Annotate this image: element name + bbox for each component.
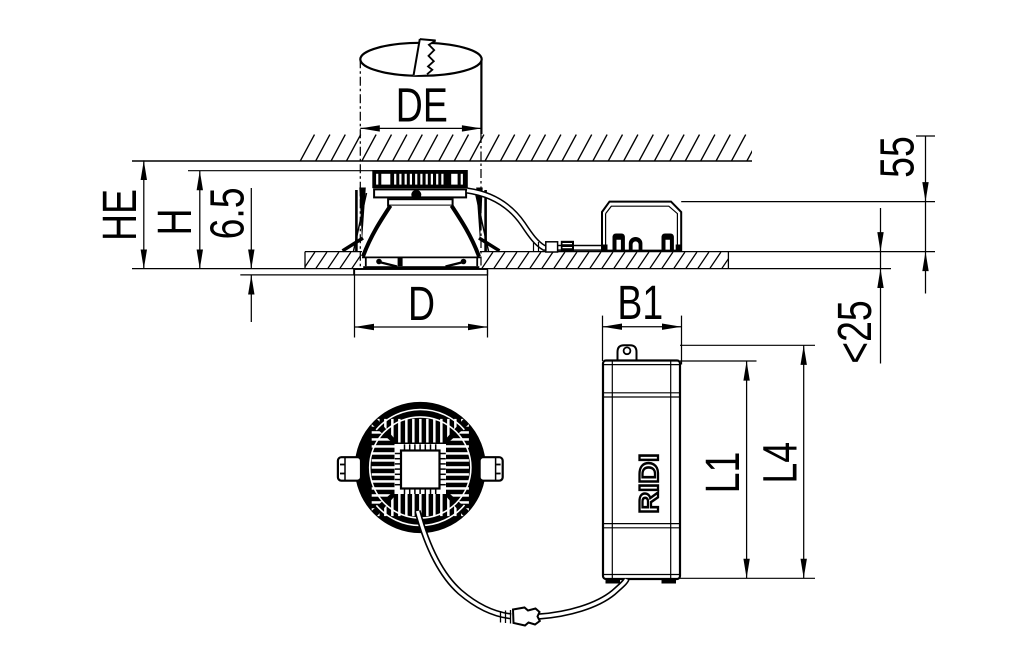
svg-text:L1: L1 — [697, 452, 751, 494]
svg-text:DE: DE — [396, 79, 448, 133]
svg-text:RIDI: RIDI — [634, 454, 664, 514]
svg-text:L4: L4 — [754, 442, 808, 484]
svg-text:D: D — [408, 278, 435, 332]
svg-text:55: 55 — [871, 136, 925, 178]
svg-text:B1: B1 — [617, 277, 663, 331]
svg-text:<25: <25 — [829, 300, 883, 363]
svg-text:HE: HE — [94, 189, 148, 241]
svg-text:6.5: 6.5 — [201, 187, 255, 239]
svg-text:H: H — [148, 208, 202, 235]
